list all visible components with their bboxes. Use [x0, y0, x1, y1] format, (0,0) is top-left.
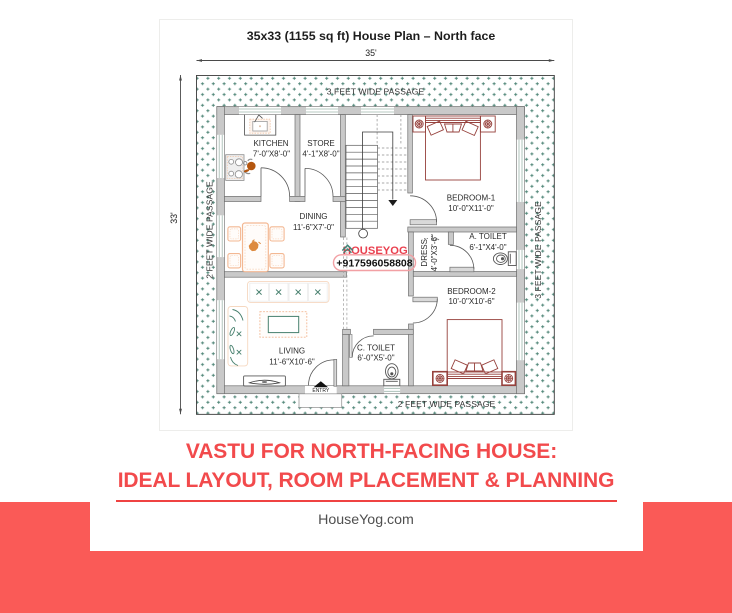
svg-text:10'-0"X10'-6": 10'-0"X10'-6"	[448, 297, 494, 306]
svg-text:BEDROOM-1: BEDROOM-1	[447, 194, 496, 203]
svg-text:6'-0"X5'-0": 6'-0"X5'-0"	[357, 354, 394, 363]
svg-text:+917596058808: +917596058808	[336, 258, 412, 270]
svg-text:2 FEET WIDE PASSAGE: 2 FEET WIDE PASSAGE	[205, 181, 215, 279]
svg-text:2 FEET WIDE PASSAGE: 2 FEET WIDE PASSAGE	[398, 399, 496, 409]
svg-text:A. TOILET: A. TOILET	[469, 232, 507, 241]
svg-text:STORE: STORE	[307, 139, 334, 148]
svg-text:BEDROOM-2: BEDROOM-2	[447, 287, 496, 296]
svg-text:KITCHEN: KITCHEN	[253, 139, 288, 148]
svg-text:33': 33'	[169, 212, 179, 224]
svg-text:4'-0"X3'-6": 4'-0"X3'-6"	[430, 234, 439, 271]
svg-text:35': 35'	[365, 48, 377, 58]
svg-text:3 FEET WIDE PASSAGE: 3 FEET WIDE PASSAGE	[533, 201, 543, 299]
svg-text:11'-6"X10'-6": 11'-6"X10'-6"	[269, 358, 315, 367]
svg-text:LIVING: LIVING	[279, 346, 305, 355]
svg-text:DRESS: DRESS	[420, 239, 429, 267]
svg-text:11'-6"X7'-0": 11'-6"X7'-0"	[293, 223, 334, 232]
svg-text:ENTRY: ENTRY	[312, 388, 330, 394]
svg-text:6'-1"X4'-0": 6'-1"X4'-0"	[469, 243, 506, 252]
svg-text:4'-1"X8'-0": 4'-1"X8'-0"	[302, 149, 339, 158]
svg-text:3 FEET WIDE PASSAGE: 3 FEET WIDE PASSAGE	[327, 87, 425, 97]
svg-text:7'-0"X8'-0": 7'-0"X8'-0"	[253, 149, 290, 158]
svg-text:DINING: DINING	[300, 212, 328, 221]
svg-text:10'-0"X11'-0": 10'-0"X11'-0"	[448, 204, 494, 213]
svg-text:C. TOILET: C. TOILET	[357, 344, 395, 353]
svg-text:35x33 (1155 sq ft) House Plan: 35x33 (1155 sq ft) House Plan – North fa…	[247, 29, 496, 43]
